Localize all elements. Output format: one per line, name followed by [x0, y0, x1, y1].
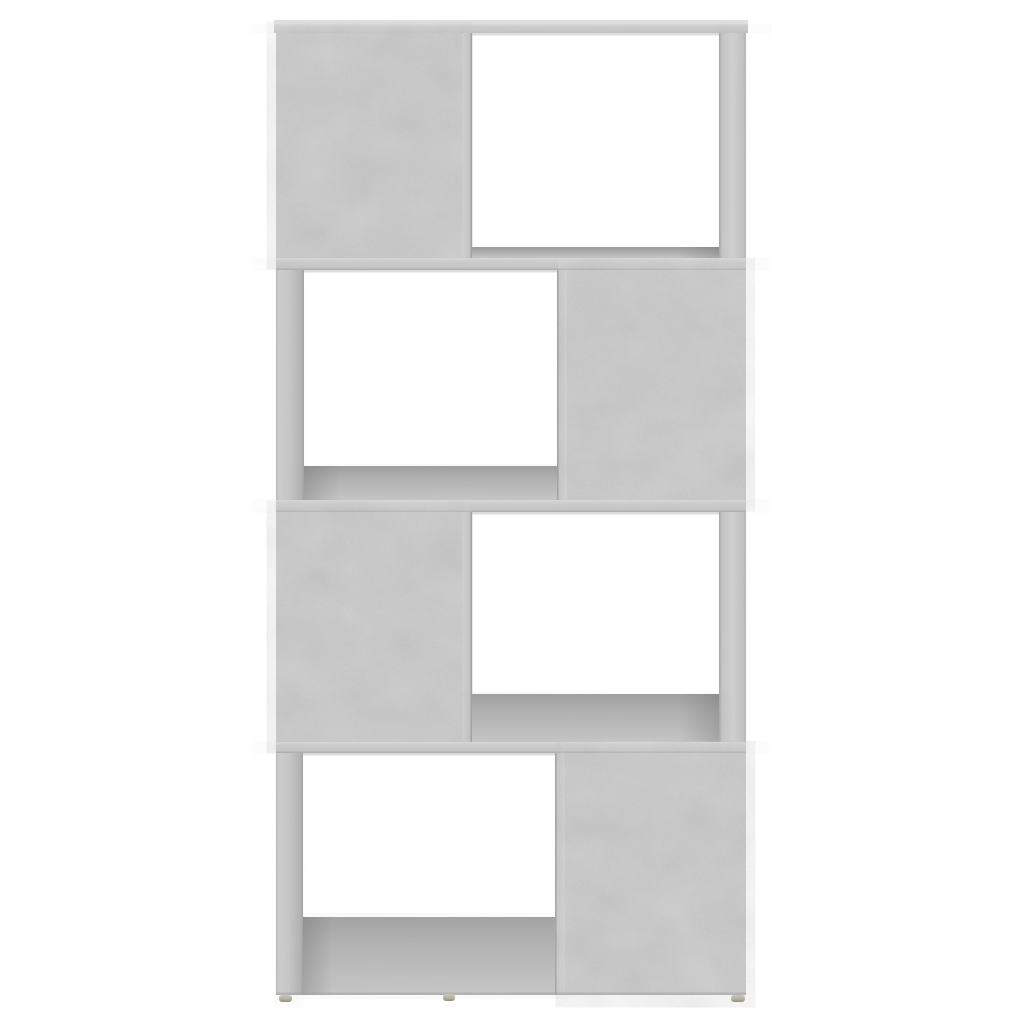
top-board	[274, 20, 748, 33]
tier1-stile-texture	[719, 33, 746, 258]
tier2-opening-top-shadow	[304, 270, 557, 273]
tier2-partition-seam	[557, 270, 559, 500]
shelf-board-3-bottom-seam	[276, 752, 746, 754]
tier4-stile-texture	[276, 753, 303, 995]
tier3-floor-corner-shadow	[680, 694, 719, 742]
tier3-panel-texture-speckle-light	[276, 512, 462, 742]
shelf-board-2-bottom-seam	[276, 511, 746, 513]
tier1-opening-top-shadow	[472, 33, 719, 36]
top-board-surface-highlight	[274, 20, 748, 24]
bookcase-product-image	[0, 0, 1024, 1024]
tier2-panel-texture-speckle-light	[567, 270, 746, 500]
tier4-floor-texture	[303, 917, 555, 995]
tier2-stile-texture	[276, 270, 304, 500]
shelf-board-3-texture	[276, 742, 746, 753]
tier3-stile-texture	[719, 512, 746, 742]
tier2-floor-corner-shadow	[304, 466, 340, 500]
top-board-texture	[274, 24, 748, 33]
shelf-board-1-texture	[276, 258, 746, 270]
foot-right	[731, 995, 745, 1002]
tier4-panel-texture-speckle-light	[565, 753, 746, 995]
tier2-floor-texture	[304, 466, 557, 500]
foot-center	[443, 994, 455, 1001]
tier4-opening-top-shadow	[303, 753, 555, 756]
product-photo-canvas	[0, 0, 1024, 1024]
tier4-partition-seam	[555, 753, 557, 995]
shelf-board-1-bottom-seam	[276, 269, 746, 271]
tier1-panel-texture-speckle-light	[276, 33, 462, 258]
tier3-opening-top-shadow	[472, 512, 719, 515]
shelf-board-2-texture	[276, 500, 746, 512]
tier4-floor-corner-shadow	[303, 917, 333, 995]
tier1-floor-corner-shadow	[679, 247, 719, 258]
tier1-partition-seam	[471, 33, 473, 258]
bottom-edge-line	[276, 993, 746, 996]
foot-left	[279, 995, 292, 1002]
